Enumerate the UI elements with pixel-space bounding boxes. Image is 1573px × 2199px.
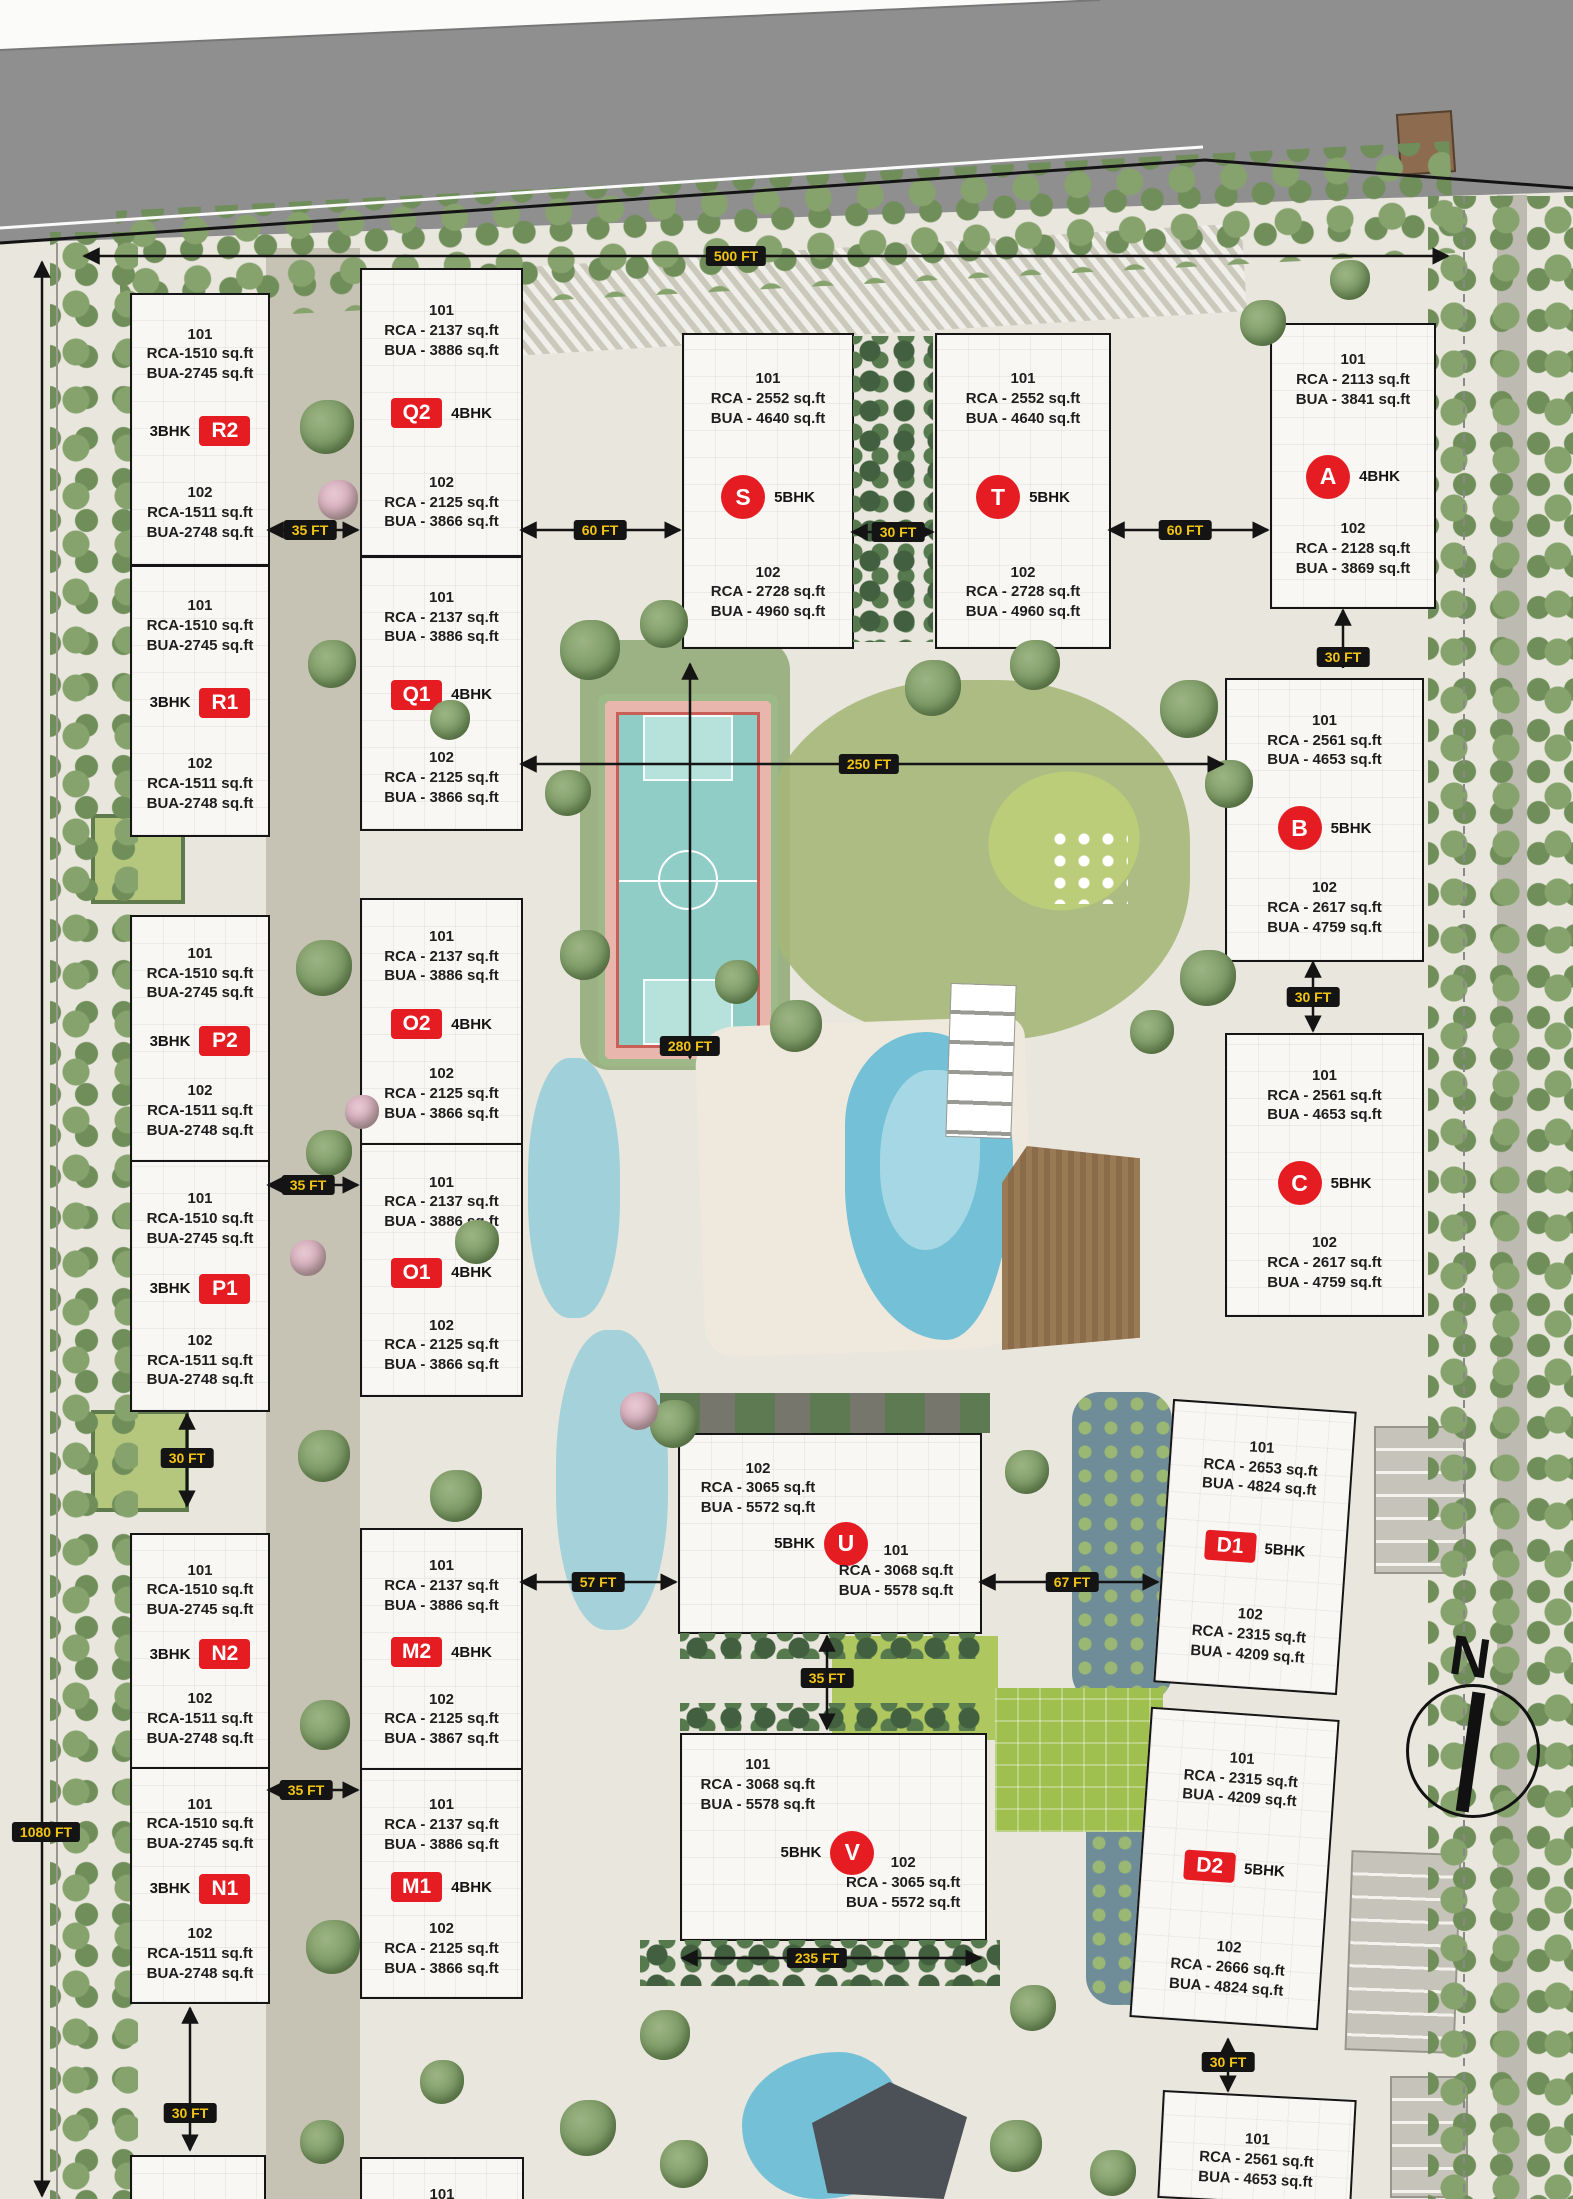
unit-info-102: 102 RCA - 2128 sq.ft BUA - 3869 sq.ft: [1272, 519, 1434, 578]
unit-info-102: 102 RCA - 2125 sq.ft BUA - 3866 sq.ft: [362, 1316, 521, 1375]
building-badge: Q2: [391, 398, 442, 428]
tree: [1160, 680, 1218, 738]
bhk-label: 3BHK: [150, 1033, 191, 1050]
unit-number: 101: [362, 1173, 521, 1193]
building-n1: 101 RCA-1510 sq.ft BUA-2745 sq.ft 3BHK N…: [130, 1767, 270, 2004]
building-n2: 101 RCA-1510 sq.ft BUA-2745 sq.ft 3BHK N…: [130, 1533, 270, 1769]
court-key-top: [643, 715, 733, 781]
unit-rca: RCA - 3065 sq.ft: [689, 1478, 827, 1498]
unit-bua: BUA - 4960 sq.ft: [937, 602, 1109, 622]
building-badge-row: D2 5BHK: [1141, 1847, 1328, 1890]
unit-number: 102: [132, 1924, 268, 1944]
building-badge: O1: [391, 1258, 442, 1288]
building-partial-bottom-right: 101 RCA - 2561 sq.ft BUA - 4653 sq.ft: [1157, 2090, 1356, 2199]
building-badge: N1: [199, 1874, 250, 1904]
bhk-label: 5BHK: [774, 489, 815, 506]
unit-rca: RCA - 2137 sq.ft: [362, 947, 521, 967]
unit-info-101: 101 RCA - 2552 sq.ft BUA - 4640 sq.ft: [937, 369, 1109, 428]
unit-info-102: 102 RCA - 2315 sq.ft BUA - 4209 sq.ft: [1157, 1599, 1341, 1671]
unit-rca: RCA - 2728 sq.ft: [684, 582, 852, 602]
palm-strip-s-t: [853, 336, 933, 642]
building-badge: D2: [1183, 1850, 1236, 1883]
unit-number: 101: [684, 369, 852, 389]
bhk-label: 4BHK: [451, 1644, 492, 1661]
unit-bua: BUA - 3866 sq.ft: [362, 1355, 521, 1375]
building-s: 101 RCA - 2552 sq.ft BUA - 4640 sq.ft S …: [682, 333, 854, 649]
dim-chip-280ft: 280 FT: [660, 1036, 720, 1056]
unit-info-102: 102 RCA - 2125 sq.ft BUA - 3867 sq.ft: [362, 1690, 521, 1749]
unit-rca: RCA - 3065 sq.ft: [827, 1873, 979, 1893]
unit-number: 102: [1272, 519, 1434, 539]
unit-bua: BUA-2745 sq.ft: [132, 983, 268, 1003]
unit-number: 101: [1272, 350, 1434, 370]
building-d1: 101 RCA - 2653 sq.ft BUA - 4824 sq.ft D1…: [1153, 1399, 1356, 1695]
unit-info-102: 102 RCA - 2125 sq.ft BUA - 3866 sq.ft: [362, 1064, 521, 1123]
unit-rca: RCA - 2137 sq.ft: [362, 1192, 521, 1212]
unit-info-102: 102 RCA - 2617 sq.ft BUA - 4759 sq.ft: [1227, 878, 1422, 937]
unit-rca: RCA-1511 sq.ft: [132, 1101, 268, 1121]
dim-chip-35ft-po: 35 FT: [282, 1175, 335, 1195]
unit-rca: RCA - 2137 sq.ft: [362, 321, 521, 341]
building-badge-row: 3BHK R1: [132, 688, 268, 718]
unit-number: 101: [1227, 1066, 1422, 1086]
unit-bua: BUA - 4960 sq.ft: [684, 602, 852, 622]
unit-bua: BUA-2745 sq.ft: [132, 1229, 268, 1249]
unit-rca: RCA - 2728 sq.ft: [937, 582, 1109, 602]
tree-strip-right: [1428, 196, 1573, 2199]
building-b: 101 RCA - 2561 sq.ft BUA - 4653 sq.ft B …: [1225, 678, 1424, 962]
unit-number: 101: [362, 2185, 522, 2199]
bhk-label: 4BHK: [451, 1264, 492, 1281]
unit-info-101: 101 RCA - 2113 sq.ft BUA - 3841 sq.ft: [1272, 350, 1434, 409]
building-badge-row: D1 5BHK: [1164, 1527, 1346, 1569]
unit-rca: RCA-1511 sq.ft: [132, 774, 268, 794]
unit-info-101: 101 RCA - 2653 sq.ft BUA - 4824 sq.ft: [1169, 1432, 1353, 1504]
unit-bua: BUA - 3867 sq.ft: [362, 1729, 521, 1749]
building-q1: 101 RCA - 2137 sq.ft BUA - 3886 sq.ft Q1…: [360, 556, 523, 831]
dim-chip-35ft-nm: 35 FT: [280, 1780, 333, 1800]
building-partial-bottom-center: 101: [360, 2157, 524, 2199]
unit-info-102: 102 RCA - 2125 sq.ft BUA - 3866 sq.ft: [362, 1919, 521, 1978]
unit-rca: RCA - 3068 sq.ft: [818, 1561, 974, 1581]
dim-chip-30ft-d2: 30 FT: [1202, 2052, 1255, 2072]
unit-number: 101: [362, 927, 521, 947]
building-p1: 101 RCA-1510 sq.ft BUA-2745 sq.ft 3BHK P…: [130, 1160, 270, 1412]
unit-rca: RCA - 2561 sq.ft: [1227, 731, 1422, 751]
building-r1: 101 RCA-1510 sq.ft BUA-2745 sq.ft 3BHK R…: [130, 565, 270, 837]
unit-bua: BUA - 3886 sq.ft: [362, 341, 521, 361]
unit-info-101: 101 RCA - 2137 sq.ft BUA - 3886 sq.ft: [362, 301, 521, 360]
unit-rca: RCA - 2125 sq.ft: [362, 1084, 521, 1104]
unit-rca: RCA-1511 sq.ft: [132, 503, 268, 523]
unit-number: 101: [132, 1561, 268, 1581]
unit-info-102: 102 RCA-1511 sq.ft BUA-2748 sq.ft: [132, 1689, 268, 1748]
building-badge-row: O2 4BHK: [362, 1009, 521, 1039]
unit-bua: BUA-2748 sq.ft: [132, 1370, 268, 1390]
unit-info-101: 101 RCA - 2552 sq.ft BUA - 4640 sq.ft: [684, 369, 852, 428]
unit-info: 101: [362, 2185, 522, 2199]
unit-number: 101: [362, 588, 521, 608]
unit-number: 102: [1227, 1233, 1422, 1253]
dim-chip-35ft-uv: 35 FT: [801, 1668, 854, 1688]
bhk-label: 3BHK: [150, 694, 191, 711]
tree: [1130, 1010, 1174, 1054]
unit-bua: BUA-2748 sq.ft: [132, 523, 268, 543]
unit-bua: BUA - 5572 sq.ft: [827, 1893, 979, 1913]
unit-bua: BUA - 3886 sq.ft: [362, 627, 521, 647]
tree: [1090, 2150, 1136, 2196]
unit-number: 102: [362, 1316, 521, 1336]
unit-number: 102: [362, 473, 521, 493]
building-badge: R2: [199, 416, 250, 446]
unit-info-101: 101 RCA - 2315 sq.ft BUA - 4209 sq.ft: [1146, 1743, 1335, 1815]
unit-number: 101: [132, 325, 268, 345]
unit-info-101: 101 RCA - 2137 sq.ft BUA - 3886 sq.ft: [362, 588, 521, 647]
building-badge-row: Q2 4BHK: [362, 398, 521, 428]
court-center-circle: [658, 850, 718, 910]
unit-bua: BUA - 3866 sq.ft: [362, 1959, 521, 1979]
unit-rca: RCA-1510 sq.ft: [132, 1580, 268, 1600]
unit-rca: RCA-1510 sq.ft: [132, 344, 268, 364]
unit-bua: BUA - 3866 sq.ft: [362, 512, 521, 532]
unit-info-101: 101 RCA - 2561 sq.ft BUA - 4653 sq.ft: [1227, 1066, 1422, 1125]
building-badge-row: 3BHK R2: [132, 416, 268, 446]
unit-rca: RCA - 2125 sq.ft: [362, 1939, 521, 1959]
basketball-court: [598, 694, 778, 1066]
unit-rca: RCA - 2552 sq.ft: [684, 389, 852, 409]
unit-number: 101: [362, 1556, 521, 1576]
unit-rca: RCA - 2617 sq.ft: [1227, 898, 1422, 918]
unit-bua: BUA-2748 sq.ft: [132, 1964, 268, 1984]
unit-rca: RCA-1511 sq.ft: [132, 1709, 268, 1729]
unit-info-102: 102 RCA - 3065 sq.ft BUA - 5572 sq.ft: [689, 1459, 827, 1518]
unit-bua: BUA - 3866 sq.ft: [362, 1104, 521, 1124]
building-partial-bottom-left: [130, 2155, 266, 2199]
building-c: 101 RCA - 2561 sq.ft BUA - 4653 sq.ft C …: [1225, 1033, 1424, 1317]
unit-bua: BUA - 4640 sq.ft: [684, 409, 852, 429]
building-badge: A: [1306, 455, 1350, 499]
unit-rca: RCA - 2125 sq.ft: [362, 768, 521, 788]
unit-info-101: 101 RCA - 3068 sq.ft BUA - 5578 sq.ft: [818, 1541, 974, 1600]
unit-rca: RCA-1511 sq.ft: [132, 1944, 268, 1964]
unit-bua: BUA-2748 sq.ft: [132, 1121, 268, 1141]
bhk-label: 3BHK: [150, 1280, 191, 1297]
unit-rca: RCA - 2128 sq.ft: [1272, 539, 1434, 559]
dim-chip-1080ft: 1080 FT: [12, 1822, 80, 1842]
courtyard-above-u: [660, 1393, 990, 1433]
dim-chip-250ft: 250 FT: [839, 754, 899, 774]
unit-number: 101: [362, 1795, 521, 1815]
unit-number: 102: [362, 748, 521, 768]
building-badge-row: C 5BHK: [1227, 1161, 1422, 1205]
unit-rca: RCA-1510 sq.ft: [132, 964, 268, 984]
building-o1: 101 RCA - 2137 sq.ft BUA - 3886 sq.ft O1…: [360, 1143, 523, 1397]
unit-info-102: 102 RCA - 2617 sq.ft BUA - 4759 sq.ft: [1227, 1233, 1422, 1292]
unit-info-102: 102 RCA-1511 sq.ft BUA-2748 sq.ft: [132, 483, 268, 542]
unit-info-101: 101 RCA - 2137 sq.ft BUA - 3886 sq.ft: [362, 927, 521, 986]
dim-chip-30ft-ab: 30 FT: [1317, 647, 1370, 667]
building-badge-row: 3BHK P2: [132, 1026, 268, 1056]
bhk-label: 3BHK: [150, 1880, 191, 1897]
unit-rca: RCA-1510 sq.ft: [132, 1209, 268, 1229]
unit-bua: BUA-2745 sq.ft: [132, 1600, 268, 1620]
building-badge-row: M1 4BHK: [362, 1872, 521, 1902]
unit-number: 102: [132, 754, 268, 774]
unit-rca: RCA - 2113 sq.ft: [1272, 370, 1434, 390]
dim-chip-500ft: 500 FT: [706, 246, 766, 266]
tree: [660, 2140, 708, 2188]
unit-info-102: 102 RCA - 2728 sq.ft BUA - 4960 sq.ft: [684, 563, 852, 622]
building-m1: 101 RCA - 2137 sq.ft BUA - 3886 sq.ft M1…: [360, 1768, 523, 1999]
unit-number: 101: [132, 1189, 268, 1209]
tree: [990, 2120, 1042, 2172]
building-badge-row: S 5BHK: [684, 475, 852, 519]
unit-number: 102: [132, 483, 268, 503]
unit-info-101: 101 RCA-1510 sq.ft BUA-2745 sq.ft: [132, 325, 268, 384]
building-r2: 101 RCA-1510 sq.ft BUA-2745 sq.ft 3BHK R…: [130, 293, 270, 566]
unit-bua: BUA - 3841 sq.ft: [1272, 390, 1434, 410]
unit-rca: RCA - 2137 sq.ft: [362, 608, 521, 628]
tree: [430, 1470, 482, 1522]
unit-info-101: 101 RCA-1510 sq.ft BUA-2745 sq.ft: [132, 1561, 268, 1620]
building-badge: M2: [391, 1637, 442, 1667]
building-badge-row: B 5BHK: [1227, 806, 1422, 850]
dim-chip-30ft-st: 30 FT: [872, 522, 925, 542]
unit-bua: BUA - 5572 sq.ft: [689, 1498, 827, 1518]
bhk-label: 5BHK: [1331, 1175, 1372, 1192]
dim-chip-57ft: 57 FT: [572, 1572, 625, 1592]
unit-info-102: 102 RCA - 3065 sq.ft BUA - 5572 sq.ft: [827, 1853, 979, 1912]
building-u: 102 RCA - 3065 sq.ft BUA - 5572 sq.ft 5B…: [678, 1433, 982, 1634]
unit-bua: BUA - 3869 sq.ft: [1272, 559, 1434, 579]
unit-rca: RCA-1510 sq.ft: [132, 616, 268, 636]
unit-info-102: 102 RCA-1511 sq.ft BUA-2748 sq.ft: [132, 754, 268, 813]
walkway-corridor: [266, 248, 360, 2199]
unit-rca: RCA - 2125 sq.ft: [362, 1335, 521, 1355]
building-badge: C: [1278, 1161, 1322, 1205]
dim-chip-67ft: 67 FT: [1046, 1572, 1099, 1592]
building-badge: P2: [199, 1026, 250, 1056]
unit-number: 101: [688, 1755, 827, 1775]
unit-bua: BUA-2745 sq.ft: [132, 636, 268, 656]
bhk-label: 3BHK: [150, 1646, 191, 1663]
unit-rca: RCA - 2137 sq.ft: [362, 1815, 521, 1835]
dim-chip-30ft-n1: 30 FT: [164, 2103, 217, 2123]
unit-number: 101: [132, 1795, 268, 1815]
bhk-label: 5BHK: [781, 1844, 822, 1861]
unit-bua: BUA-2745 sq.ft: [132, 1834, 268, 1854]
unit-info-101: 101 RCA - 2561 sq.ft BUA - 4653 sq.ft: [1227, 711, 1422, 770]
tree: [560, 2100, 616, 2156]
unit-info-101: 101 RCA - 2137 sq.ft BUA - 3886 sq.ft: [362, 1795, 521, 1854]
building-badge: T: [976, 475, 1020, 519]
palm-strip-above-v: [680, 1703, 982, 1731]
palm-strip-below-u: [680, 1633, 980, 1659]
unit-bua: BUA - 5578 sq.ft: [688, 1795, 827, 1815]
bhk-label: 5BHK: [1331, 820, 1372, 837]
tree: [1180, 950, 1236, 1006]
unit-number: 101: [937, 369, 1109, 389]
building-badge: B: [1278, 806, 1322, 850]
dim-chip-30ft-bc: 30 FT: [1287, 987, 1340, 1007]
building-t: 101 RCA - 2552 sq.ft BUA - 4640 sq.ft T …: [935, 333, 1111, 649]
unit-number: 101: [362, 301, 521, 321]
bhk-label: 5BHK: [1029, 489, 1070, 506]
bhk-label: 5BHK: [774, 1535, 815, 1552]
unit-bua: BUA-2748 sq.ft: [132, 1729, 268, 1749]
unit-info-101: 101 RCA - 2137 sq.ft BUA - 3886 sq.ft: [362, 1556, 521, 1615]
unit-number: 102: [684, 563, 852, 583]
building-a: 101 RCA - 2113 sq.ft BUA - 3841 sq.ft A …: [1270, 323, 1436, 609]
unit-info-102: 102 RCA - 2666 sq.ft BUA - 4824 sq.ft: [1133, 1931, 1322, 2003]
dim-chip-60ft-qs: 60 FT: [574, 520, 627, 540]
unit-number: 101: [132, 596, 268, 616]
building-badge: M1: [391, 1872, 442, 1902]
wood-deck: [1002, 1146, 1140, 1350]
building-m2: 101 RCA - 2137 sq.ft BUA - 3886 sq.ft M2…: [360, 1528, 523, 1770]
building-badge-row: 3BHK N1: [132, 1874, 268, 1904]
pergola-row: [945, 983, 1016, 1139]
building-d2: 101 RCA - 2315 sq.ft BUA - 4209 sq.ft D2…: [1129, 1707, 1339, 2030]
building-badge-row: T 5BHK: [937, 475, 1109, 519]
building-o2: 101 RCA - 2137 sq.ft BUA - 3886 sq.ft O2…: [360, 898, 523, 1145]
unit-bua: BUA - 3886 sq.ft: [362, 1835, 521, 1855]
unit-info-102: 102 RCA-1511 sq.ft BUA-2748 sq.ft: [132, 1331, 268, 1390]
bhk-label: 5BHK: [1243, 1860, 1285, 1880]
unit-number: 102: [689, 1459, 827, 1479]
unit-bua: BUA - 4640 sq.ft: [937, 409, 1109, 429]
unit-info-101: 101 RCA-1510 sq.ft BUA-2745 sq.ft: [132, 596, 268, 655]
unit-info-101: 101 RCA-1510 sq.ft BUA-2745 sq.ft: [132, 1795, 268, 1854]
seating-dots: [1048, 828, 1128, 904]
unit-number: 101: [818, 1541, 974, 1561]
bhk-label: 4BHK: [451, 405, 492, 422]
water-feature-1: [528, 1058, 620, 1318]
unit-bua: BUA - 4653 sq.ft: [1227, 1105, 1422, 1125]
unit-bua: BUA - 4759 sq.ft: [1227, 1273, 1422, 1293]
unit-number: 102: [1227, 878, 1422, 898]
building-v: 101 RCA - 3068 sq.ft BUA - 5578 sq.ft 5B…: [680, 1733, 987, 1941]
building-badge: O2: [391, 1009, 442, 1039]
unit-rca: RCA - 3068 sq.ft: [688, 1775, 827, 1795]
unit-rca: RCA - 2125 sq.ft: [362, 493, 521, 513]
unit-info-101: 101 RCA - 3068 sq.ft BUA - 5578 sq.ft: [688, 1755, 827, 1814]
unit-number: 102: [362, 1064, 521, 1084]
building-badge: D1: [1204, 1530, 1257, 1563]
compass: N: [1400, 1628, 1560, 1838]
dim-chip-235ft: 235 FT: [787, 1948, 847, 1968]
building-badge-row: O1 4BHK: [362, 1258, 521, 1288]
unit-bua: BUA-2745 sq.ft: [132, 364, 268, 384]
unit-info-102: 102 RCA - 2125 sq.ft BUA - 3866 sq.ft: [362, 473, 521, 532]
unit-info-101: 101 RCA - 2137 sq.ft BUA - 3886 sq.ft: [362, 1173, 521, 1232]
building-p2: 101 RCA-1510 sq.ft BUA-2745 sq.ft 3BHK P…: [130, 915, 270, 1162]
bhk-label: 4BHK: [451, 1016, 492, 1033]
unit-bua: BUA - 3886 sq.ft: [362, 1212, 521, 1232]
unit-number: 101: [1227, 711, 1422, 731]
unit-info-102: 102 RCA-1511 sq.ft BUA-2748 sq.ft: [132, 1081, 268, 1140]
unit-bua: BUA - 3886 sq.ft: [362, 1596, 521, 1616]
tree-strip-left: [50, 232, 138, 2199]
bhk-label: 3BHK: [150, 423, 191, 440]
unit-info-101: 101 RCA-1510 sq.ft BUA-2745 sq.ft: [132, 1189, 268, 1248]
north-label: N: [1446, 1622, 1495, 1692]
unit-rca: RCA-1511 sq.ft: [132, 1351, 268, 1371]
unit-number: 102: [132, 1331, 268, 1351]
unit-bua: BUA - 3866 sq.ft: [362, 788, 521, 808]
building-badge: R1: [199, 688, 250, 718]
building-badge: P1: [199, 1274, 250, 1304]
court-border: [605, 701, 771, 1059]
bhk-label: 5BHK: [1264, 1540, 1306, 1560]
tree: [640, 2010, 690, 2060]
tree: [1005, 1450, 1049, 1494]
unit-number: 102: [362, 1919, 521, 1939]
unit-number: 102: [132, 1689, 268, 1709]
unit-bua: BUA - 5578 sq.ft: [818, 1581, 974, 1601]
dim-chip-60ft-ta: 60 FT: [1159, 520, 1212, 540]
site-master-plan: 101 RCA-1510 sq.ft BUA-2745 sq.ft 3BHK R…: [0, 0, 1573, 2199]
unit-info-102: 102 RCA - 2728 sq.ft BUA - 4960 sq.ft: [937, 563, 1109, 622]
tree: [1010, 1985, 1056, 2031]
building-badge-row: 3BHK N2: [132, 1639, 268, 1669]
tree: [1010, 640, 1060, 690]
lawn-right-of-v: [995, 1688, 1163, 1832]
bhk-label: 4BHK: [451, 1879, 492, 1896]
building-badge: N2: [199, 1639, 250, 1669]
unit-rca: RCA - 2125 sq.ft: [362, 1709, 521, 1729]
unit-info-102: 102 RCA - 2125 sq.ft BUA - 3866 sq.ft: [362, 748, 521, 807]
unit-bua: BUA-2748 sq.ft: [132, 794, 268, 814]
unit-number: 102: [362, 1690, 521, 1710]
unit-number: 102: [827, 1853, 979, 1873]
unit-info-101: 101 RCA - 2561 sq.ft BUA - 4653 sq.ft: [1160, 2125, 1353, 2194]
building-badge-row: A 4BHK: [1272, 455, 1434, 499]
unit-number: 101: [132, 944, 268, 964]
unit-rca: RCA - 2561 sq.ft: [1227, 1086, 1422, 1106]
dim-chip-30ft-green: 30 FT: [161, 1448, 214, 1468]
unit-rca: RCA - 2552 sq.ft: [937, 389, 1109, 409]
building-badge-row: 3BHK P1: [132, 1274, 268, 1304]
tree: [1330, 260, 1370, 300]
unit-info-102: 102 RCA-1511 sq.ft BUA-2748 sq.ft: [132, 1924, 268, 1983]
tree: [420, 2060, 464, 2104]
unit-rca: RCA - 2137 sq.ft: [362, 1576, 521, 1596]
unit-bua: BUA - 4653 sq.ft: [1227, 750, 1422, 770]
bhk-label: 4BHK: [1359, 468, 1400, 485]
building-badge: S: [721, 475, 765, 519]
unit-bua: BUA - 3886 sq.ft: [362, 966, 521, 986]
dim-chip-35ft-rq: 35 FT: [284, 520, 337, 540]
unit-rca: RCA - 2617 sq.ft: [1227, 1253, 1422, 1273]
unit-info-101: 101 RCA-1510 sq.ft BUA-2745 sq.ft: [132, 944, 268, 1003]
unit-number: 102: [132, 1081, 268, 1101]
building-q2: 101 RCA - 2137 sq.ft BUA - 3886 sq.ft Q2…: [360, 268, 523, 557]
building-badge-row: M2 4BHK: [362, 1637, 521, 1667]
unit-bua: BUA - 4759 sq.ft: [1227, 918, 1422, 938]
unit-rca: RCA-1510 sq.ft: [132, 1814, 268, 1834]
unit-number: 102: [937, 563, 1109, 583]
